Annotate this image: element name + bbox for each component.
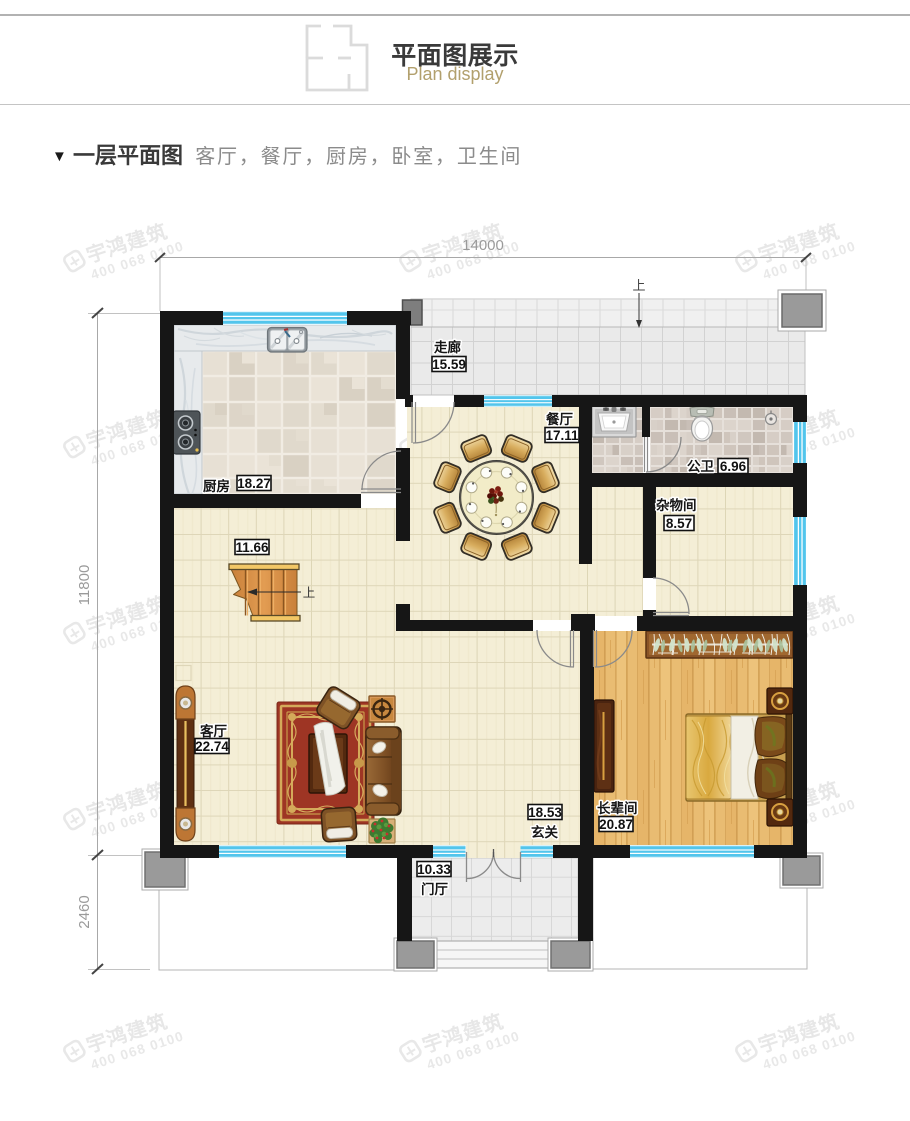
- svg-text:18.53: 18.53: [528, 805, 562, 820]
- svg-text:公卫: 公卫: [687, 459, 715, 474]
- svg-text:上: 上: [632, 278, 645, 293]
- svg-text:6.96: 6.96: [720, 459, 747, 474]
- svg-text:18.27: 18.27: [237, 476, 271, 491]
- svg-text:客厅: 客厅: [199, 723, 227, 739]
- svg-text:20.87: 20.87: [599, 817, 633, 832]
- svg-text:门厅: 门厅: [421, 881, 448, 897]
- svg-text:17.11: 17.11: [545, 428, 579, 443]
- svg-text:厨房: 厨房: [203, 478, 230, 494]
- svg-text:14000: 14000: [462, 237, 504, 254]
- svg-text:8.57: 8.57: [666, 516, 692, 531]
- svg-text:玄关: 玄关: [531, 824, 559, 840]
- svg-text:杂物间: 杂物间: [656, 497, 697, 513]
- svg-text:11800: 11800: [76, 565, 93, 606]
- svg-text:11.66: 11.66: [235, 540, 269, 555]
- svg-text:长辈间: 长辈间: [597, 800, 638, 816]
- svg-text:餐厅: 餐厅: [545, 411, 574, 427]
- svg-text:10.33: 10.33: [417, 862, 451, 877]
- svg-text:2460: 2460: [76, 895, 93, 928]
- svg-text:走廊: 走廊: [434, 339, 461, 355]
- svg-text:上: 上: [303, 586, 316, 600]
- svg-text:15.59: 15.59: [432, 357, 466, 372]
- svg-text:22.74: 22.74: [195, 739, 229, 754]
